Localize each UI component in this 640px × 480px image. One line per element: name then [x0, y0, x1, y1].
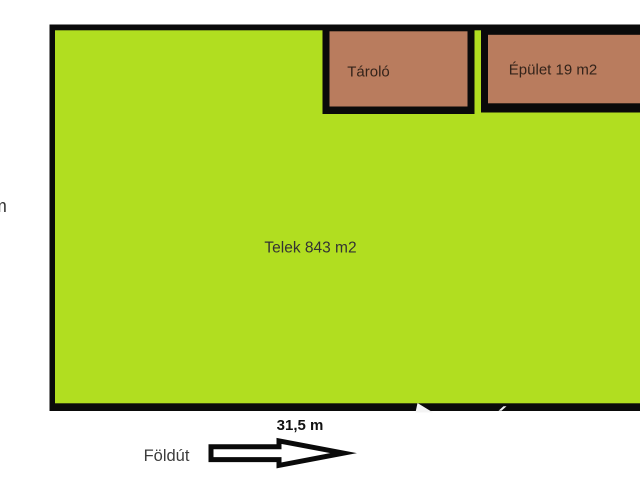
svg-text:Tároló: Tároló [347, 64, 390, 81]
svg-text:31,5 m: 31,5 m [277, 417, 324, 434]
svg-text:Épület 19 m2: Épület 19 m2 [509, 62, 597, 79]
svg-text:Telek 843 m2: Telek 843 m2 [264, 240, 356, 257]
svg-text:m: m [0, 196, 7, 216]
svg-text:Földút: Földút [144, 447, 190, 465]
